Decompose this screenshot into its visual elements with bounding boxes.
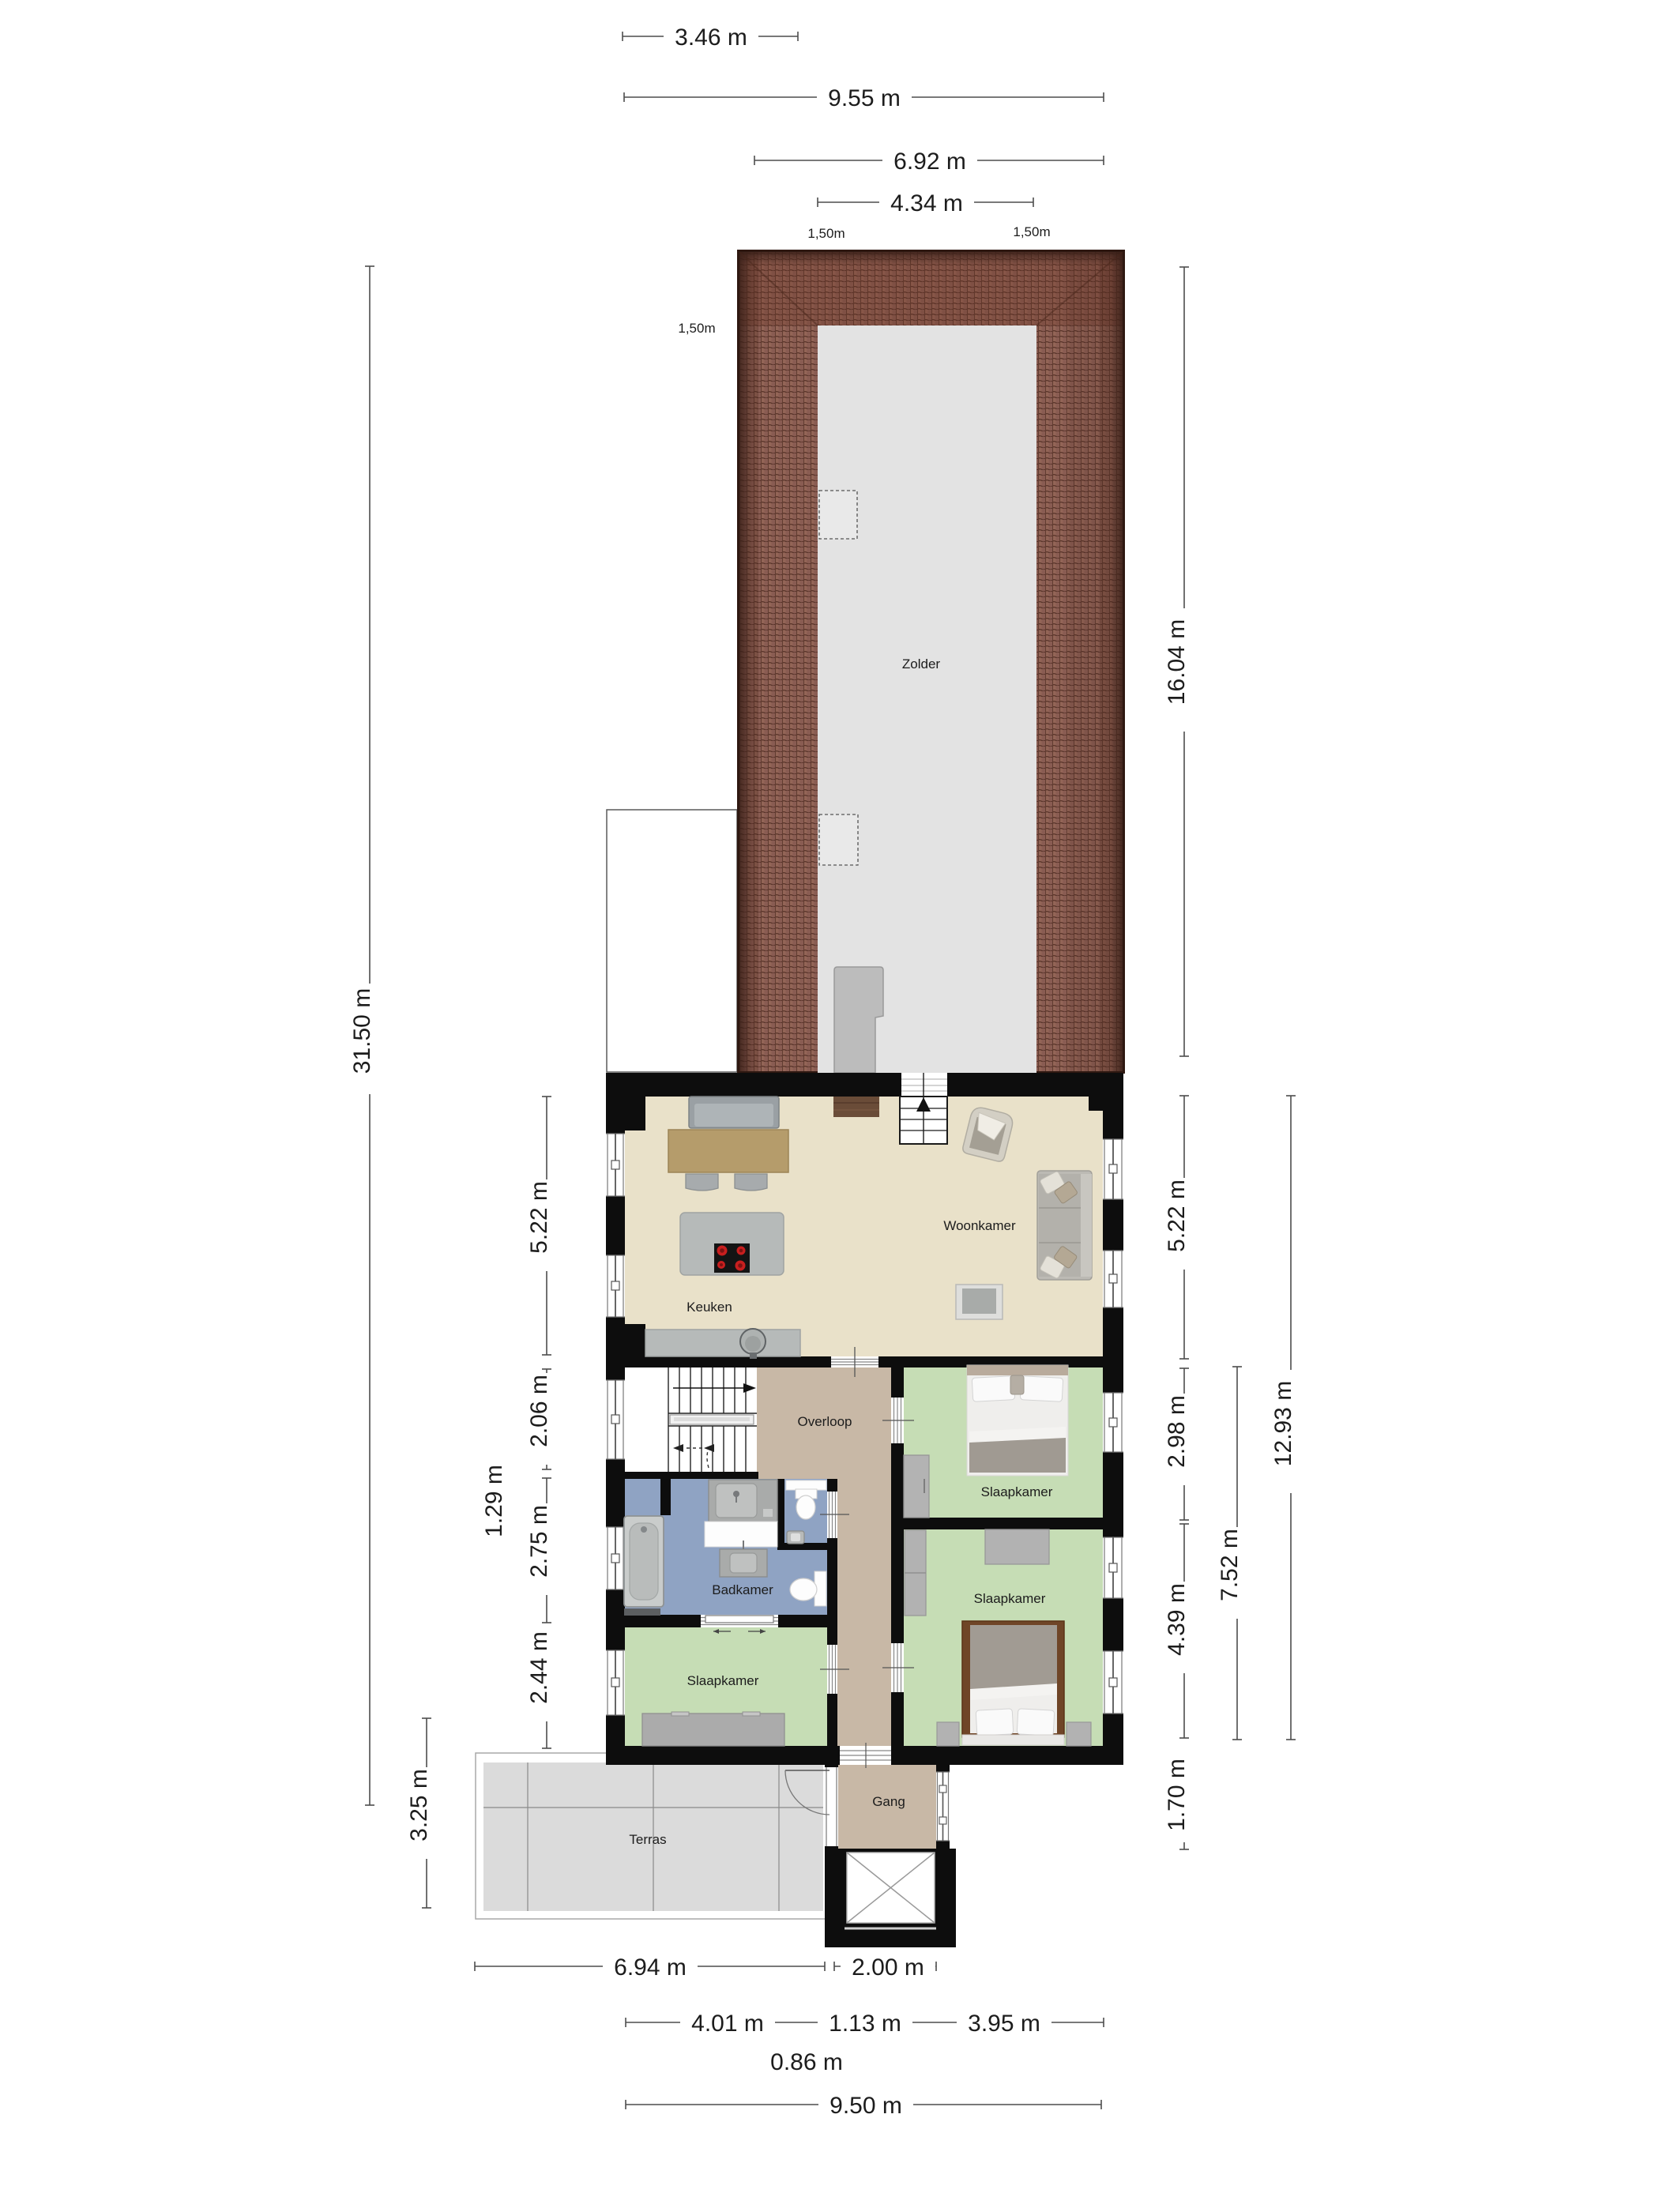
- svg-text:9.55 m: 9.55 m: [828, 85, 901, 111]
- svg-text:1,50m: 1,50m: [678, 321, 715, 336]
- svg-text:3.25 m: 3.25 m: [406, 1769, 432, 1841]
- svg-text:4.39 m: 4.39 m: [1164, 1583, 1190, 1656]
- svg-text:Slaapkamer: Slaapkamer: [981, 1484, 1053, 1499]
- svg-text:1,50m: 1,50m: [807, 226, 845, 241]
- svg-text:Terras: Terras: [629, 1832, 666, 1847]
- svg-text:0.86 m: 0.86 m: [770, 2049, 843, 2075]
- svg-text:3.95 m: 3.95 m: [968, 2011, 1040, 2037]
- svg-text:1.13 m: 1.13 m: [829, 2011, 901, 2037]
- svg-text:2.06 m: 2.06 m: [526, 1375, 552, 1447]
- svg-text:2.00 m: 2.00 m: [852, 1954, 924, 1981]
- svg-text:Gang: Gang: [872, 1794, 905, 1809]
- svg-text:Overloop: Overloop: [798, 1414, 852, 1429]
- svg-text:9.50 m: 9.50 m: [829, 2093, 902, 2119]
- svg-text:4.34 m: 4.34 m: [890, 190, 963, 216]
- svg-text:31.50 m: 31.50 m: [349, 988, 375, 1074]
- svg-text:Zolder: Zolder: [902, 656, 941, 671]
- svg-text:4.01 m: 4.01 m: [691, 2011, 764, 2037]
- svg-text:Slaapkamer: Slaapkamer: [687, 1673, 759, 1688]
- svg-text:1.70 m: 1.70 m: [1164, 1759, 1190, 1831]
- svg-text:Badkamer: Badkamer: [712, 1582, 773, 1597]
- svg-text:7.52 m: 7.52 m: [1217, 1529, 1243, 1601]
- svg-text:12.93 m: 12.93 m: [1270, 1381, 1296, 1466]
- svg-text:5.22 m: 5.22 m: [526, 1181, 552, 1254]
- svg-text:1.29 m: 1.29 m: [481, 1465, 507, 1537]
- svg-text:Keuken: Keuken: [687, 1300, 732, 1315]
- svg-text:Slaapkamer: Slaapkamer: [974, 1591, 1046, 1606]
- svg-text:2.75 m: 2.75 m: [526, 1505, 552, 1578]
- svg-text:2.44 m: 2.44 m: [526, 1631, 552, 1704]
- svg-text:3.46 m: 3.46 m: [675, 24, 747, 51]
- svg-text:5.22 m: 5.22 m: [1164, 1179, 1190, 1252]
- svg-text:16.04 m: 16.04 m: [1164, 619, 1190, 705]
- svg-text:6.92 m: 6.92 m: [893, 149, 966, 175]
- svg-text:Woonkamer: Woonkamer: [943, 1218, 1016, 1233]
- svg-text:6.94 m: 6.94 m: [614, 1954, 687, 1981]
- svg-text:2.98 m: 2.98 m: [1164, 1395, 1190, 1468]
- svg-text:1,50m: 1,50m: [1013, 224, 1050, 239]
